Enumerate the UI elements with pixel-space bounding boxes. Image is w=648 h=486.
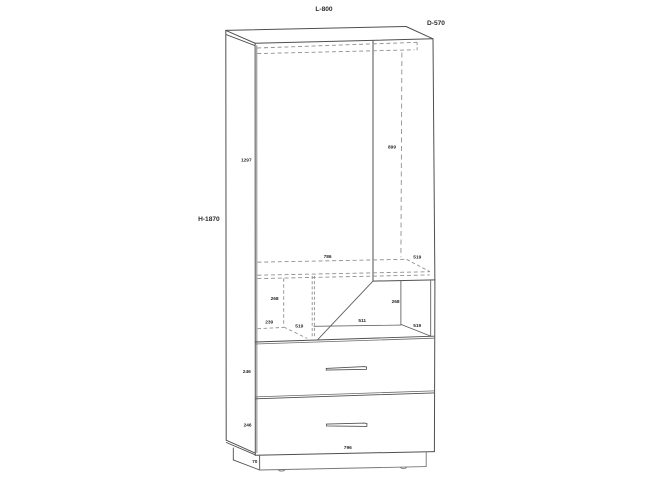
svg-text:796: 796 xyxy=(344,445,352,451)
svg-text:239: 239 xyxy=(265,320,273,326)
svg-text:268: 268 xyxy=(271,296,279,302)
svg-text:899: 899 xyxy=(388,145,396,151)
svg-text:519: 519 xyxy=(413,323,421,329)
svg-text:246: 246 xyxy=(243,369,251,375)
svg-text:511: 511 xyxy=(358,318,366,324)
svg-text:519: 519 xyxy=(413,255,421,261)
svg-text:H-1870: H-1870 xyxy=(198,216,220,223)
svg-text:519: 519 xyxy=(295,324,303,330)
svg-text:268: 268 xyxy=(392,299,400,305)
svg-text:D-570: D-570 xyxy=(427,20,445,27)
svg-text:L-800: L-800 xyxy=(315,6,333,13)
svg-text:1297: 1297 xyxy=(241,158,252,164)
svg-text:246: 246 xyxy=(244,423,252,429)
svg-text:786: 786 xyxy=(324,254,332,260)
svg-text:70: 70 xyxy=(252,459,258,465)
